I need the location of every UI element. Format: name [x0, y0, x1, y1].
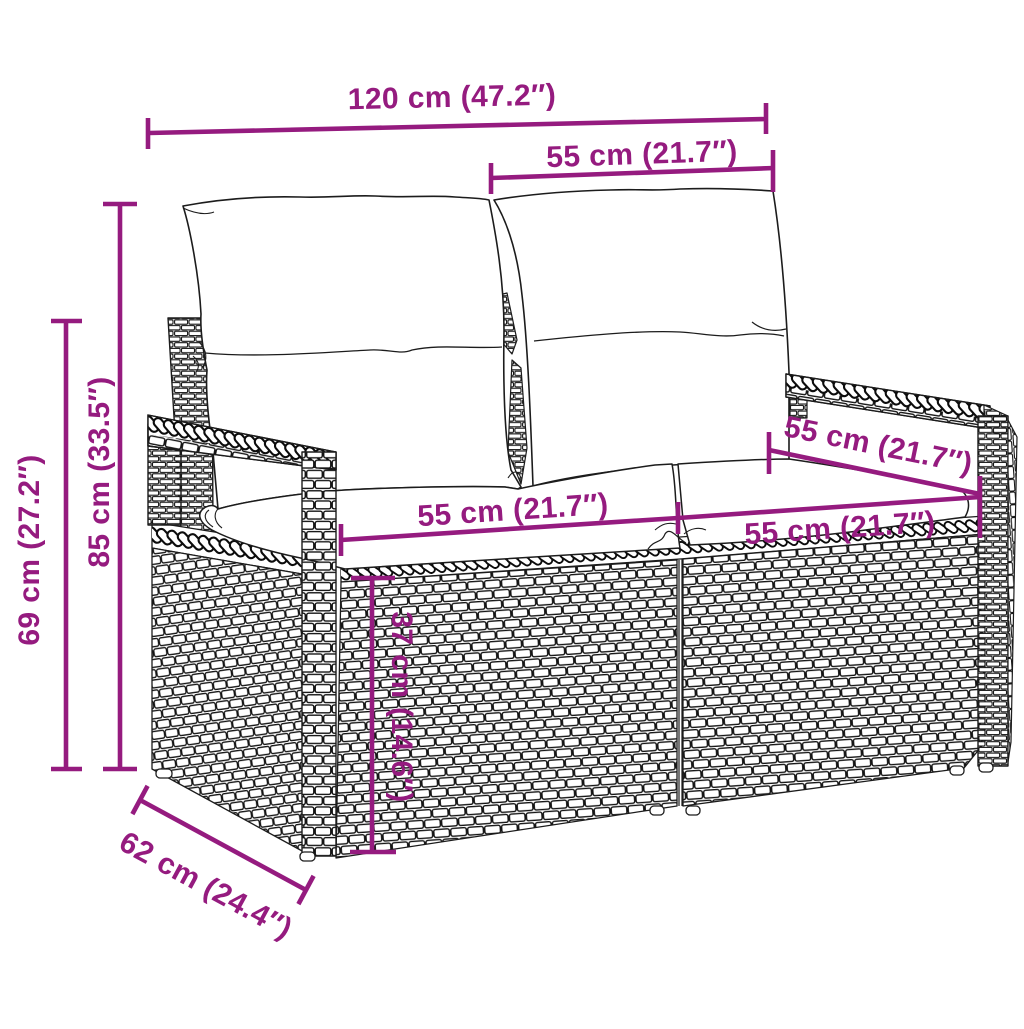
svg-text:120 cm (47.2″): 120 cm (47.2″): [347, 79, 556, 117]
svg-text:55 cm (21.7″): 55 cm (21.7″): [546, 135, 738, 175]
svg-text:85 cm (33.5″): 85 cm (33.5″): [83, 376, 116, 567]
svg-text:69 cm (27.2″): 69 cm (27.2″): [13, 454, 46, 645]
svg-text:37 cm (14.6″): 37 cm (14.6″): [385, 611, 418, 802]
svg-text:62 cm (24.4″): 62 cm (24.4″): [114, 825, 298, 945]
